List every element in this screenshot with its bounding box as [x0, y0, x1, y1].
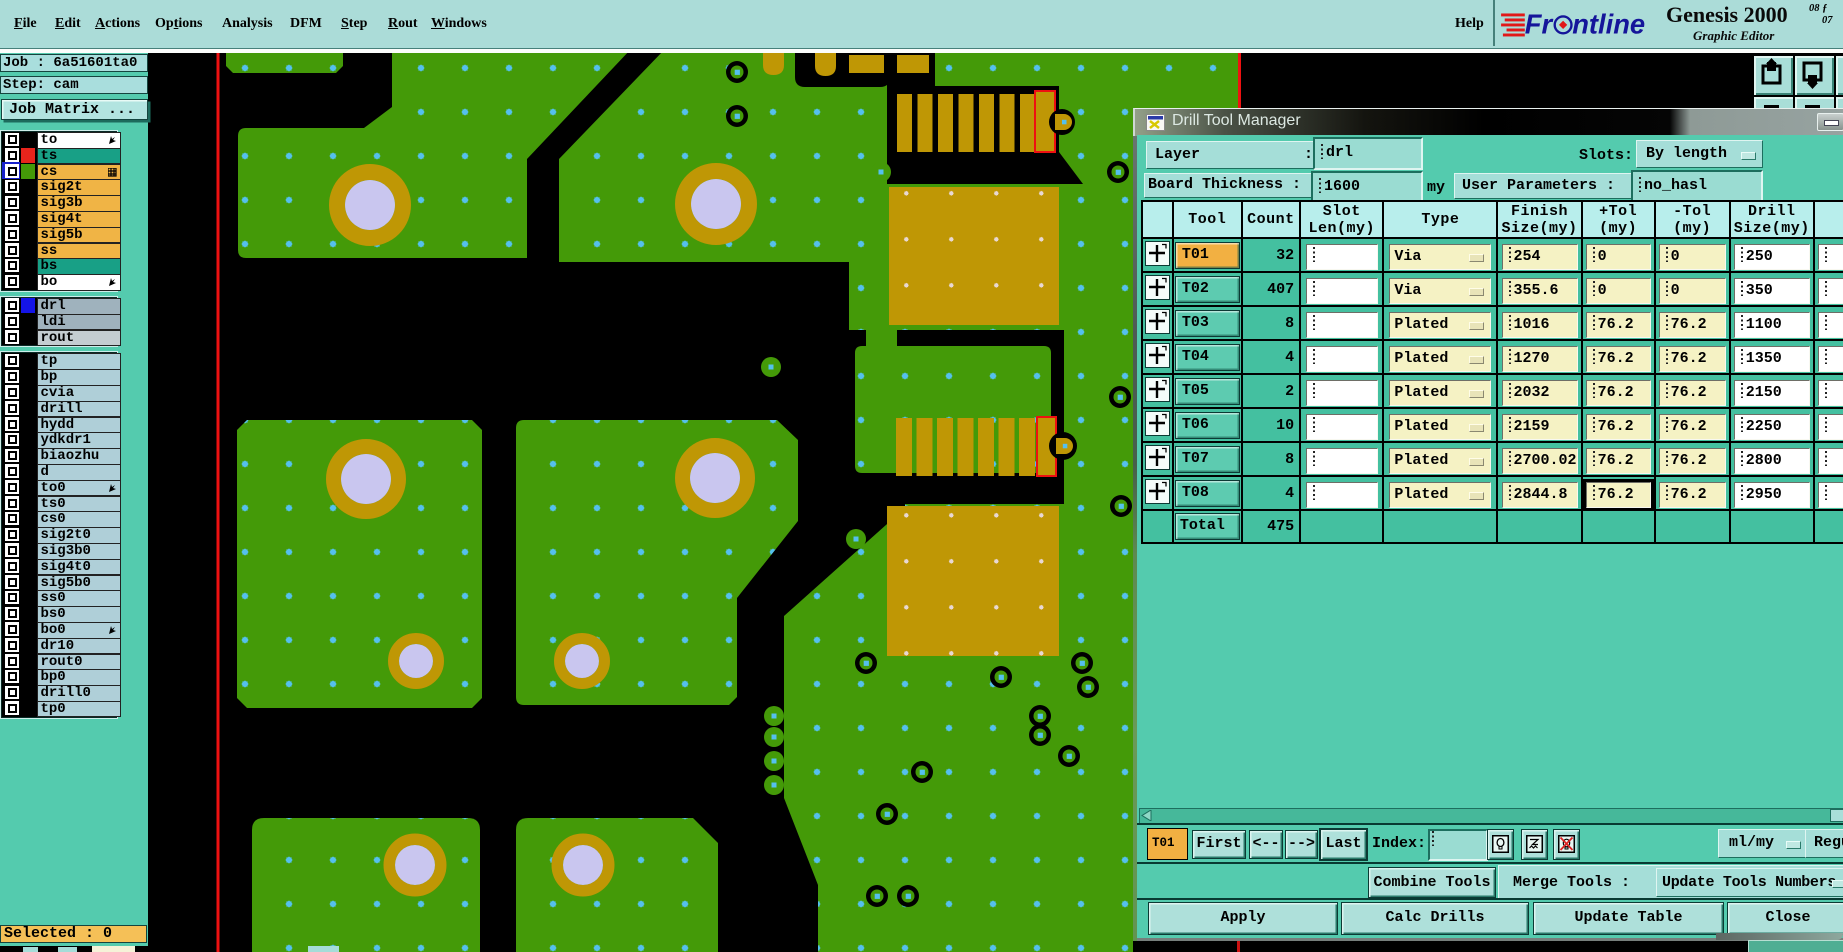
- svg-text:Fr: Fr: [1525, 9, 1554, 39]
- svg-text:ntline: ntline: [1572, 9, 1645, 39]
